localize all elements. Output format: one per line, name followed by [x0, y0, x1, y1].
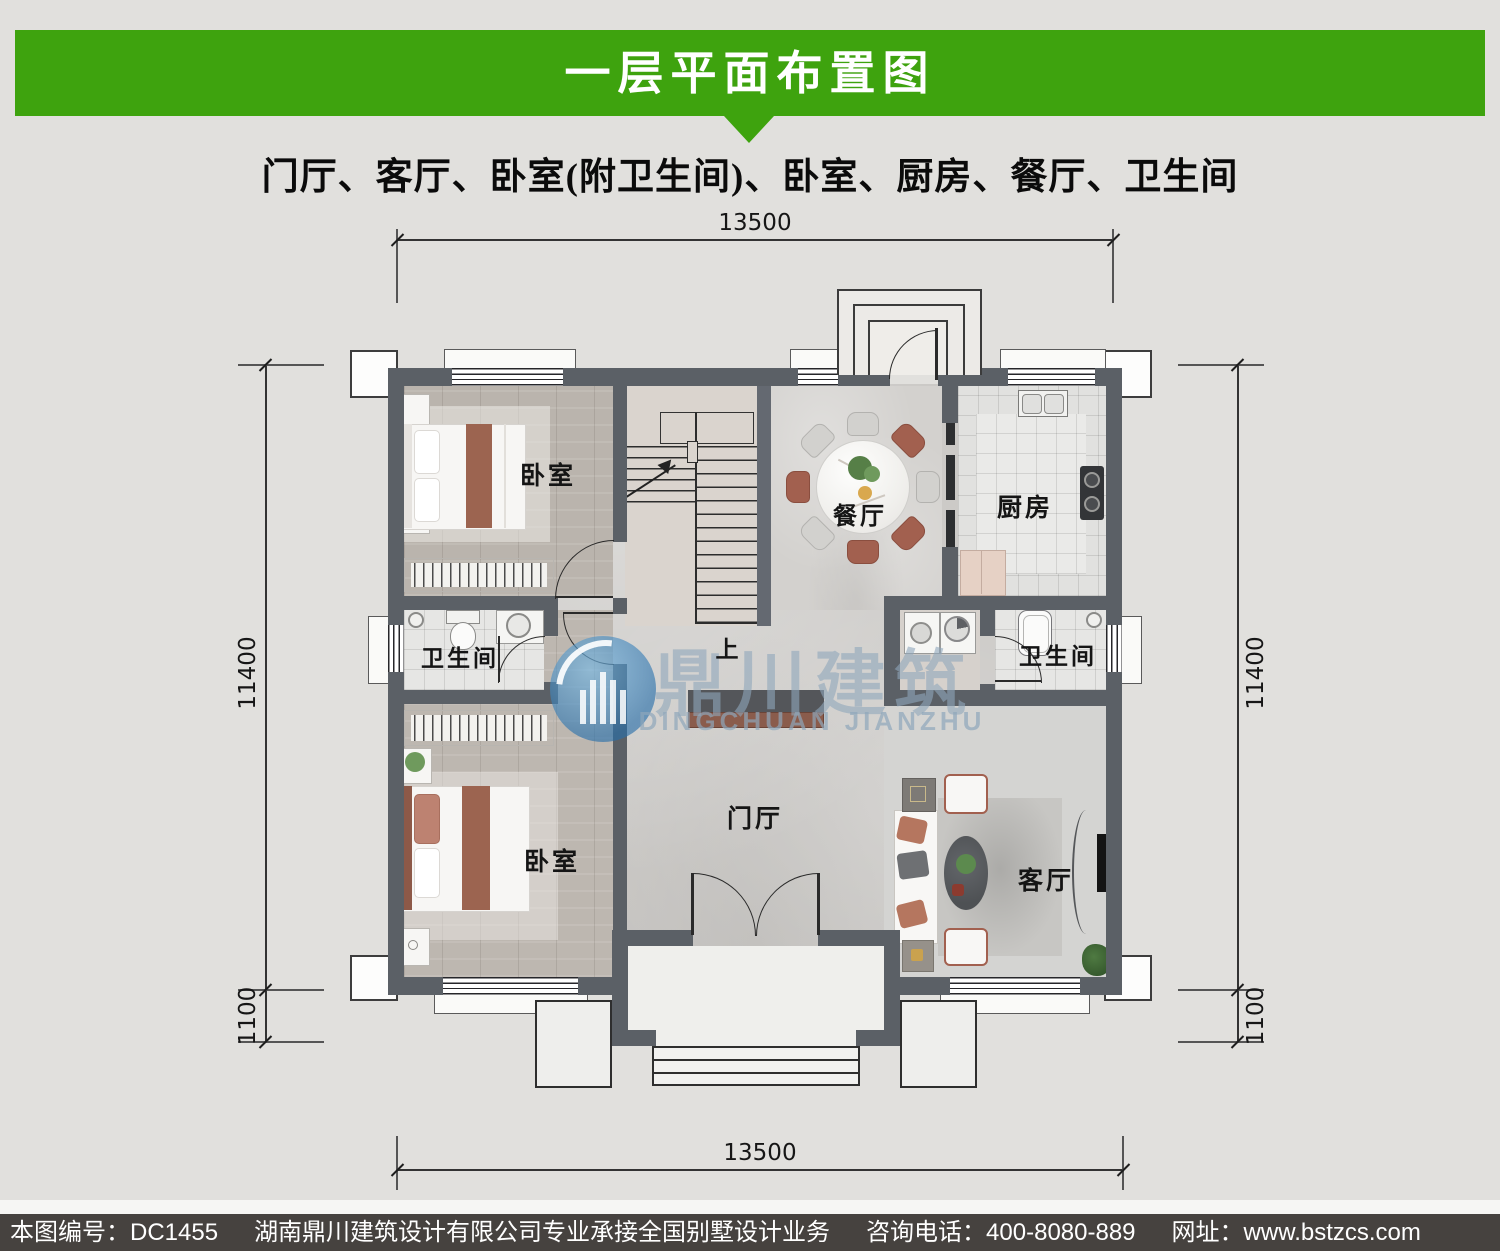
pillow	[414, 430, 440, 474]
dim-ext	[238, 364, 324, 366]
window	[798, 368, 838, 386]
dim-ext	[1122, 1136, 1124, 1190]
wall	[613, 598, 627, 614]
porch-wall	[856, 1030, 884, 1046]
pillow	[414, 478, 440, 522]
dim-label-left-main: 11400	[235, 613, 261, 733]
wall	[388, 672, 404, 995]
footer-drawing-no: 本图编号：DC1455	[10, 1219, 218, 1246]
dim-line-top	[397, 239, 1113, 241]
bed-runner	[462, 786, 490, 910]
wall	[388, 977, 443, 995]
wall	[388, 368, 404, 625]
shower-head-icon	[408, 612, 424, 628]
wall	[980, 610, 995, 636]
plant-icon	[956, 854, 976, 874]
stair-landing	[660, 412, 754, 444]
wall	[942, 547, 958, 596]
basin-mirror	[944, 616, 970, 642]
shower-head-icon	[1086, 612, 1102, 628]
logo-bar	[590, 680, 596, 724]
porch-wall	[884, 946, 900, 1046]
step-line	[652, 1059, 860, 1061]
dim-line-right	[1237, 365, 1239, 1042]
dim-label-right-small: 1100	[1243, 956, 1269, 1076]
porch-wall	[612, 946, 628, 1046]
stair-direction-label: 上	[707, 630, 747, 664]
stove-burner	[1084, 496, 1100, 512]
wall	[613, 386, 627, 542]
room-label-dining: 餐厅	[800, 496, 920, 531]
room-label-kitchen: 厨房	[965, 488, 1085, 524]
logo-bar	[600, 672, 606, 724]
window-sill	[1120, 616, 1142, 684]
dim-label-left-small: 1100	[235, 956, 261, 1076]
dim-line-left	[265, 365, 267, 1042]
washer-drum	[910, 622, 932, 644]
room-label-foyer: 门厅	[695, 799, 815, 835]
wall	[404, 690, 558, 704]
room-label-living: 客厅	[986, 861, 1106, 897]
floor-plan-page: 一层平面布置图 门厅、客厅、卧室(附卫生间)、卧室、厨房、餐厅、卫生间 1350…	[0, 0, 1500, 1251]
nightstand-knob	[408, 940, 418, 950]
wardrobe	[404, 710, 554, 746]
wall	[942, 386, 958, 423]
wall	[884, 596, 1106, 610]
door-leaf	[555, 596, 613, 598]
door-leaf	[935, 328, 938, 380]
footer-company: 湖南鼎川建筑设计有限公司专业承接全国别墅设计业务	[254, 1219, 830, 1246]
title-banner: 一层平面布置图	[15, 30, 1485, 116]
sliding-door-panel	[946, 455, 955, 500]
porch-platform	[900, 1000, 977, 1088]
wall	[1080, 977, 1122, 995]
table-tray	[911, 949, 923, 961]
wash-basin	[506, 613, 531, 638]
sliding-door-panel	[946, 510, 955, 547]
watermark-en: DINGCHUAN JIANZHU	[612, 706, 1012, 737]
dim-label-top: 13500	[695, 210, 815, 236]
wall	[544, 610, 558, 636]
banner-pointer-icon	[724, 116, 774, 143]
stair-end-line	[697, 622, 757, 624]
wall	[757, 386, 771, 626]
sink-basin	[1022, 394, 1042, 414]
footer-phone: 咨询电话：400-8080-889	[866, 1219, 1135, 1246]
door-leaf	[563, 612, 613, 614]
logo-bar	[580, 690, 586, 724]
window	[950, 977, 1080, 995]
window	[1008, 368, 1095, 386]
room-label-bedroom-bottom: 卧室	[492, 842, 612, 878]
armchair	[944, 774, 988, 814]
sliding-door-panel	[946, 423, 955, 445]
stair-newel	[687, 441, 698, 463]
stair-flight-main	[697, 446, 757, 624]
footer-website: 网址：www.bstzcs.com	[1172, 1219, 1421, 1246]
room-label-bedroom-top: 卧室	[488, 456, 608, 492]
plant-icon	[864, 466, 880, 482]
pillow	[414, 794, 440, 844]
wall	[818, 930, 900, 946]
sofa-pillow	[896, 850, 929, 880]
dining-chair	[847, 540, 879, 564]
porch-platform	[535, 1000, 612, 1088]
dining-chair	[847, 412, 879, 436]
wall	[404, 596, 558, 610]
footer-gap	[0, 1200, 1500, 1214]
dim-ext	[1178, 364, 1264, 366]
room-label-bathroom-right: 卫生间	[993, 637, 1123, 671]
pillow	[414, 848, 440, 898]
footer-bar: 本图编号：DC1455湖南鼎川建筑设计有限公司专业承接全国别墅设计业务咨询电话：…	[0, 1214, 1500, 1251]
porch-wall	[628, 1030, 656, 1046]
dim-label-right-main: 11400	[1243, 613, 1269, 733]
dim-ext	[396, 1136, 398, 1190]
wall	[563, 368, 798, 386]
sink-basin	[1044, 394, 1064, 414]
armchair	[944, 928, 988, 966]
room-label-bathroom-left: 卫生间	[395, 639, 525, 673]
wall	[1106, 672, 1122, 995]
dim-label-bottom: 13500	[700, 1140, 820, 1166]
door-leaf	[691, 873, 694, 935]
wardrobe	[404, 558, 554, 592]
table-tray	[910, 786, 926, 802]
plant-icon	[405, 752, 425, 772]
table-decor	[952, 884, 964, 896]
step-line	[652, 1072, 860, 1074]
window-sill	[368, 616, 390, 684]
entry-steps	[652, 1046, 860, 1086]
stove-burner	[1084, 472, 1100, 488]
porch-floor	[628, 946, 884, 1046]
window	[443, 977, 578, 995]
cabinet-divider	[981, 550, 982, 594]
page-title: 一层平面布置图	[15, 30, 1485, 116]
nightstand	[400, 394, 430, 428]
dim-line-bottom	[397, 1169, 1123, 1171]
kitchen-cabinet	[960, 550, 1006, 596]
wall	[1106, 368, 1122, 625]
door-leaf	[817, 873, 820, 935]
window	[452, 368, 563, 386]
room-list-subtitle: 门厅、客厅、卧室(附卫生间)、卧室、厨房、餐厅、卫生间	[0, 146, 1500, 200]
